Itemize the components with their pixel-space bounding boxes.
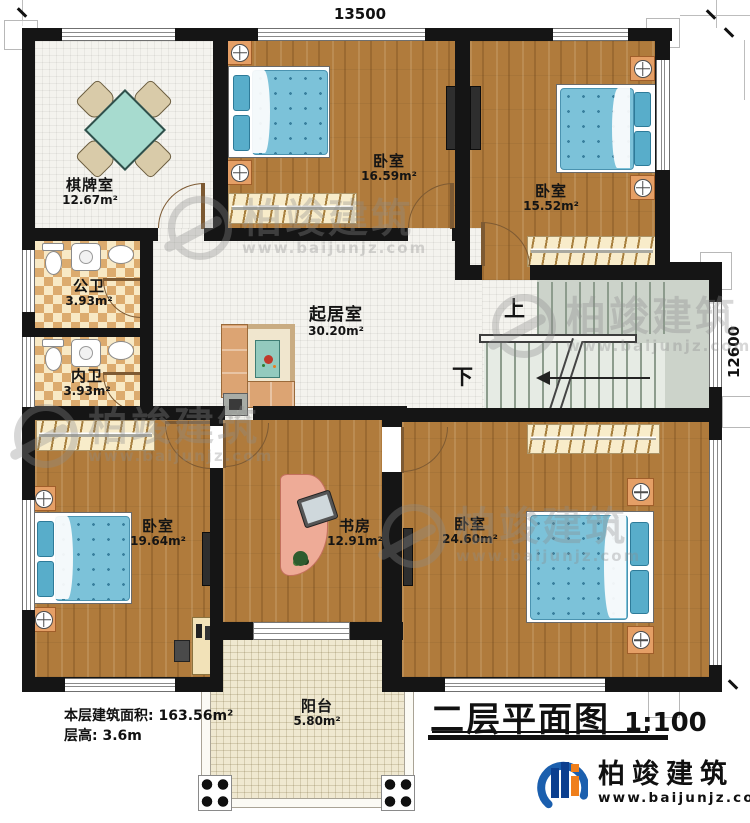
- wall-between-north-bedrooms: [455, 41, 470, 280]
- room-area: 15.52m²: [510, 200, 592, 213]
- room-label-inner-bathroom: 内卫 3.93m²: [52, 368, 122, 398]
- room-label-bedroom-southwest: 卧室 19.64m²: [118, 518, 198, 548]
- title-text: 二层平面图: [430, 692, 610, 741]
- bed: [32, 512, 132, 604]
- nightstand: [227, 160, 252, 185]
- bed: [526, 511, 654, 623]
- room-label-balcony: 阳台 5.80m²: [282, 698, 352, 728]
- room-area: 3.93m²: [52, 385, 122, 398]
- lamp-icon: [634, 179, 652, 197]
- lamp-icon: [231, 44, 249, 62]
- drawing-title: 二层平面图 1:100: [430, 692, 707, 741]
- room-label-public-bathroom: 公卫 3.93m²: [54, 278, 124, 308]
- wall-bathroom-divider: [35, 328, 153, 337]
- shower: [71, 243, 101, 271]
- balcony-column-left: [198, 775, 232, 811]
- dim-tick: [724, 27, 735, 38]
- window: [62, 28, 175, 41]
- pillow: [634, 92, 651, 127]
- wardrobe: [527, 236, 657, 267]
- floor-area-note: 本层建筑面积: 163.56m²: [64, 706, 233, 726]
- dimension-top: 13500: [320, 5, 400, 23]
- stair-handrail: [479, 334, 637, 343]
- brand-block: 柏竣建筑 www.baijunjz.com: [532, 752, 750, 814]
- extension-line: [716, 0, 717, 28]
- shower: [71, 339, 101, 367]
- toilet: [45, 251, 62, 275]
- door-leaf: [401, 427, 404, 473]
- stair-down-label: 下: [452, 361, 473, 391]
- lamp-icon: [231, 164, 249, 182]
- window: [65, 678, 175, 692]
- floor-notes: 本层建筑面积: 163.56m² 层高: 3.6m: [64, 706, 233, 747]
- wall-segment: [455, 265, 482, 280]
- wall-stairwell-south: [402, 408, 709, 422]
- door-leaf: [481, 222, 485, 266]
- sheet-fold: [612, 88, 630, 168]
- window: [445, 678, 605, 692]
- stair-direction-line: [548, 377, 650, 379]
- room-label-bedroom-southeast: 卧室 24.60m²: [430, 516, 510, 546]
- plant: [293, 551, 308, 566]
- pillow: [630, 570, 649, 614]
- room-label-study: 书房 12.91m²: [315, 518, 395, 548]
- toilet: [42, 339, 64, 347]
- wall-stairwell-north: [530, 265, 722, 280]
- room-area: 3.93m²: [54, 295, 124, 308]
- title-underline-thin: [432, 731, 648, 733]
- sheet-fold: [55, 516, 73, 599]
- room-area: 16.59m²: [347, 170, 431, 183]
- dimension-right: 12600: [725, 326, 743, 378]
- room-name: 阳台: [282, 698, 352, 715]
- room-name: 卧室: [118, 518, 198, 535]
- window: [22, 500, 35, 610]
- side-table: [223, 393, 248, 416]
- window: [656, 60, 670, 170]
- room-label-bedroom-northeast: 卧室 15.52m²: [510, 183, 592, 213]
- room-area: 24.60m²: [430, 533, 510, 546]
- coffee-table: [255, 340, 280, 378]
- lamp-icon: [35, 490, 53, 508]
- wall-segment: [382, 408, 402, 427]
- room-label-chess: 棋牌室 12.67m²: [50, 177, 130, 207]
- pillow: [630, 522, 649, 566]
- door-leaf: [223, 423, 226, 468]
- nightstand: [630, 56, 655, 81]
- pillow: [634, 131, 651, 166]
- room-area: 12.91m²: [315, 535, 395, 548]
- room-area: 19.64m²: [118, 535, 198, 548]
- room-label-bedroom-north: 卧室 16.59m²: [347, 153, 431, 183]
- pillow: [233, 115, 250, 151]
- window: [258, 28, 425, 41]
- door-leaf: [201, 183, 205, 229]
- door-leaf: [165, 421, 211, 424]
- window: [22, 337, 35, 407]
- nightstand: [627, 626, 654, 654]
- room-label-living: 起居室 30.20m²: [298, 306, 374, 338]
- room-name: 起居室: [298, 306, 374, 325]
- lamp-icon: [632, 483, 650, 501]
- room-name: 卧室: [510, 183, 592, 200]
- wardrobe: [228, 193, 357, 224]
- wall-segment: [210, 420, 223, 426]
- brand-url: www.baijunjz.com: [598, 790, 750, 806]
- wall-study-south-left: [223, 622, 253, 640]
- wall-study-south-right: [350, 622, 403, 640]
- floor-height-note: 层高: 3.6m: [64, 726, 233, 746]
- wardrobe: [36, 420, 155, 451]
- window: [553, 28, 628, 41]
- stool: [174, 640, 190, 662]
- brand-logo-icon: [532, 752, 588, 814]
- tv: [470, 86, 481, 150]
- dim-tick: [728, 679, 739, 690]
- sheet-fold: [252, 70, 270, 153]
- wall-chess-bedroom: [213, 41, 228, 241]
- room-name: 书房: [315, 518, 395, 535]
- sheet-fold: [604, 515, 626, 618]
- nightstand: [227, 40, 252, 65]
- bed: [556, 84, 656, 173]
- title-underline-thick: [428, 735, 668, 740]
- stair-direction-arrow: [536, 371, 550, 385]
- sink: [108, 245, 134, 264]
- window: [22, 250, 35, 312]
- sofa: [247, 381, 295, 408]
- toilet: [42, 243, 64, 251]
- lamp-icon: [634, 60, 652, 78]
- room-area: 12.67m²: [50, 194, 130, 207]
- window: [709, 440, 722, 665]
- room-name: 卧室: [347, 153, 431, 170]
- room-area: 5.80m²: [282, 715, 352, 728]
- wall-bedroom-study-west: [210, 468, 223, 692]
- tv: [403, 528, 413, 586]
- wall-study-bedroom-east: [382, 472, 402, 692]
- wall-living-south-west: [35, 406, 225, 420]
- sink: [108, 341, 134, 360]
- room-name: 内卫: [52, 368, 122, 385]
- pillow: [233, 75, 250, 111]
- floor-plan-page: 上 下: [0, 0, 750, 823]
- brand-name: 柏竣建筑: [598, 760, 750, 790]
- nightstand: [627, 478, 654, 506]
- stair-flight-up: [537, 282, 665, 334]
- room-area: 30.20m²: [298, 325, 374, 338]
- extension-line: [744, 40, 745, 100]
- pillow: [37, 521, 54, 557]
- wardrobe: [527, 424, 660, 454]
- wall-bedroom-north-south: [204, 228, 408, 241]
- lamp-icon: [632, 631, 650, 649]
- balcony-sliding-door: [253, 622, 350, 640]
- balcony-column-right: [381, 775, 415, 811]
- room-name: 卧室: [430, 516, 510, 533]
- bed: [228, 66, 330, 158]
- pillow: [37, 561, 54, 597]
- wall-chess-south: [35, 228, 158, 241]
- room-name: 棋牌室: [50, 177, 130, 194]
- offset-box: [722, 396, 750, 428]
- nightstand: [630, 175, 655, 200]
- stair-up-label: 上: [504, 293, 525, 323]
- title-scale: 1:100: [624, 708, 707, 738]
- sofa: [221, 324, 248, 398]
- door-leaf: [450, 183, 454, 229]
- lamp-icon: [35, 611, 53, 629]
- dimension-right-wrap: 12600: [712, 312, 750, 392]
- room-name: 公卫: [54, 278, 124, 295]
